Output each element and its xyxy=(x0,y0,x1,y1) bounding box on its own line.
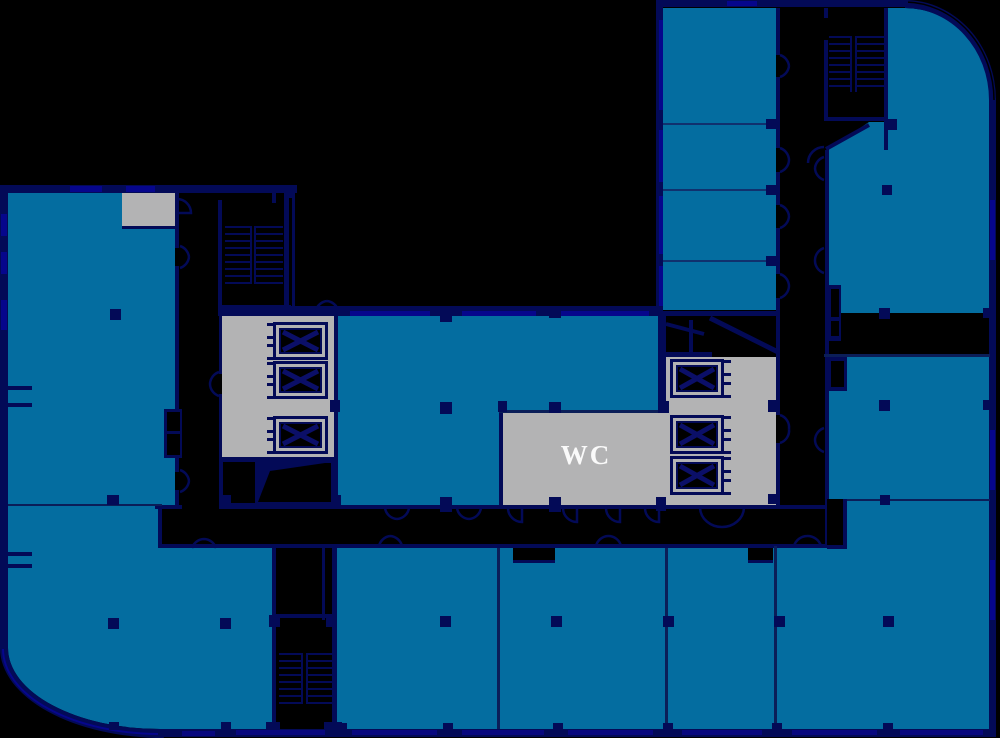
svg-text:WC: WC xyxy=(561,440,612,470)
